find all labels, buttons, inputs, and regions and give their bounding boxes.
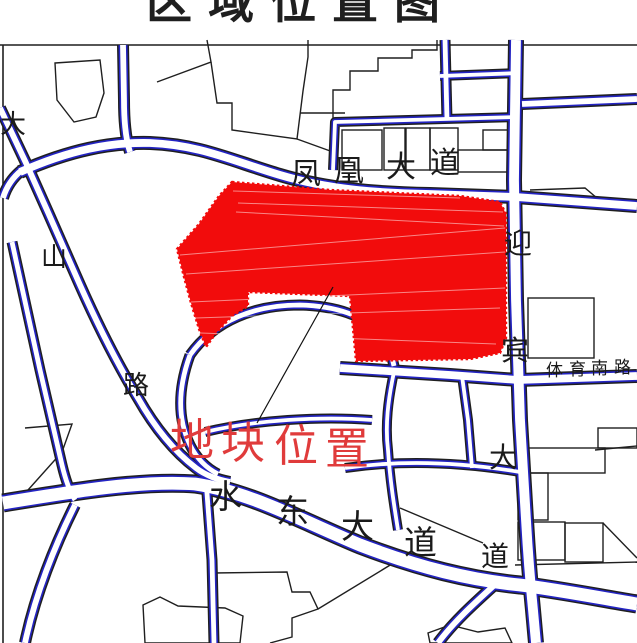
road-label-shuidong-char: 东 — [276, 497, 309, 530]
road-label-fenghuang-char: 大 — [386, 153, 416, 183]
road-label-dashan-char: 大 — [0, 112, 26, 138]
roads-core-layer — [0, 40, 637, 643]
parcel-location-label-char: 地 — [170, 419, 214, 463]
parcel-location-label-char: 置 — [325, 428, 369, 472]
map-canvas: 凤凰大道迎宾大道体育南路水东大道大山路地块位置 — [0, 0, 637, 643]
road-label-shuidong-char: 道 — [404, 528, 437, 561]
road-label-shuidong-char: 水 — [209, 482, 242, 515]
road-label-yingbin-char: 大 — [489, 445, 517, 473]
road-label-fenghuang-char: 凤 — [291, 160, 321, 190]
road-label-shuidong-char: 大 — [341, 512, 374, 545]
location-map: 区域位置图 — [0, 0, 637, 643]
map-drawing — [0, 0, 637, 643]
road-label-yingbin-char: 道 — [481, 544, 509, 572]
roads-blue-layer — [0, 40, 637, 643]
road-label-fenghuang-char: 凰 — [334, 157, 364, 187]
parcel-layer — [177, 182, 506, 361]
road-label-dashan-char: 山 — [41, 245, 67, 271]
road-label-dashan-char: 路 — [123, 373, 149, 399]
parcel-location-label-char: 位 — [274, 425, 318, 469]
road-label-tiyu-char: 体 — [546, 362, 563, 379]
road-label-tiyu-char: 南 — [591, 360, 608, 377]
roads-casing-layer — [0, 40, 637, 643]
map-frame — [0, 45, 637, 643]
road-label-tiyu-char: 路 — [614, 359, 631, 376]
road-label-yingbin-char: 宾 — [501, 338, 529, 366]
road-label-fenghuang-char: 道 — [430, 149, 460, 179]
road-label-tiyu-char: 育 — [569, 361, 586, 378]
road-label-yingbin-char: 迎 — [504, 231, 532, 259]
parcel-location-label-char: 块 — [221, 422, 265, 466]
